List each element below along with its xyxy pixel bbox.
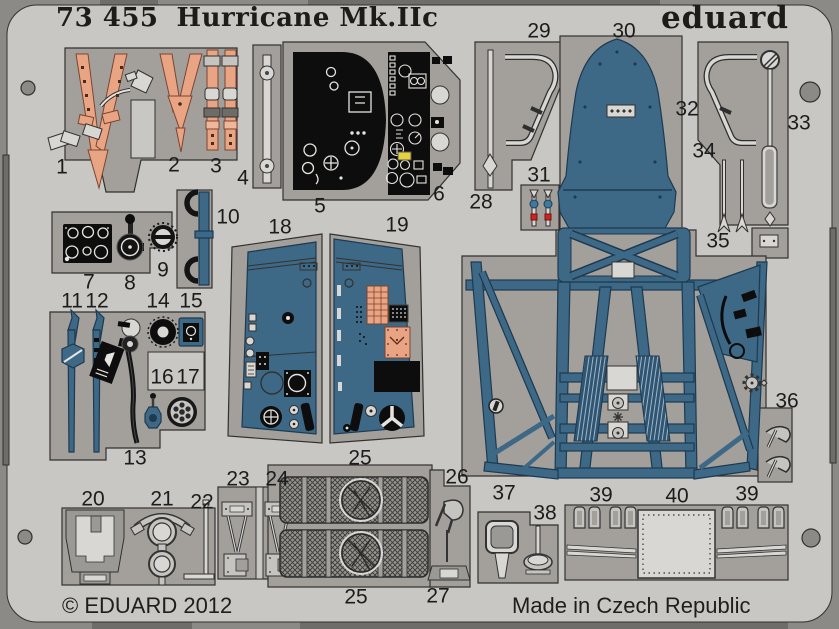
- part-number-label: 1: [56, 157, 68, 178]
- part-number-label: 2: [168, 155, 180, 176]
- part-number-label: 22: [190, 492, 213, 513]
- part-number-label: 28: [469, 192, 492, 213]
- part-number-label: 32: [675, 99, 698, 120]
- part-number-label: 39: [589, 485, 612, 506]
- catalog-number: 73 455: [56, 3, 159, 33]
- part-18-sidewall-left: [242, 242, 317, 434]
- part-number-label: 30: [612, 21, 635, 42]
- part-number-label: 31: [527, 165, 550, 186]
- part-40-plate: [638, 510, 715, 578]
- part-number-label: 14: [146, 291, 169, 312]
- part-number-label: 19: [385, 215, 408, 236]
- part-15-gauge-box: [179, 318, 203, 346]
- part-number-label: 12: [85, 291, 108, 312]
- part-number-label: 36: [775, 391, 798, 412]
- part-number-label: 39: [735, 484, 758, 505]
- part-number-label: 37: [492, 483, 515, 504]
- part-number-label: 8: [124, 273, 136, 294]
- part-number-label: 29: [527, 21, 550, 42]
- part-number-label: 40: [665, 486, 688, 507]
- part-5-instrument-panel: [293, 52, 386, 190]
- part-number-label: 16: [150, 367, 173, 388]
- part-number-label: 35: [706, 231, 729, 252]
- part-number-label: 13: [123, 448, 146, 469]
- part-number-label: 24: [265, 469, 288, 490]
- part-number-label: 5: [314, 196, 326, 217]
- part-number-label: 25: [344, 587, 367, 608]
- part-number-label: 6: [433, 184, 445, 205]
- part-number-label: 17: [176, 367, 199, 388]
- part-35-clip: [760, 235, 778, 247]
- part-number-label: 3: [210, 156, 222, 177]
- part-number-label: 38: [533, 503, 556, 524]
- part-number-label: 18: [268, 217, 291, 238]
- part-number-label: 34: [692, 141, 715, 162]
- made-in-text: Made in Czech Republic: [512, 593, 750, 619]
- sheet-title: 73 455Hurricane Mk.IIc: [56, 3, 438, 33]
- part-17-wheel: [167, 397, 197, 427]
- part-7-gauge-subpanel: [63, 224, 112, 263]
- part-number-label: 23: [226, 469, 249, 490]
- part-number-label: 4: [237, 168, 249, 189]
- brand-logo: eduard: [661, 0, 789, 36]
- part-27-box: [428, 566, 470, 580]
- part-number-label: 20: [81, 489, 104, 510]
- copyright-text: © EDUARD 2012: [62, 593, 232, 619]
- product-name: Hurricane Mk.IIc: [177, 3, 439, 33]
- part-number-label: 25: [348, 448, 371, 469]
- part-number-label: 21: [150, 489, 173, 510]
- part-number-label: 33: [787, 113, 810, 134]
- part-number-label: 26: [445, 467, 468, 488]
- fret-graphics: [0, 0, 839, 629]
- part-number-label: 10: [216, 207, 239, 228]
- part-number-label: 11: [61, 291, 83, 312]
- part-number-label: 15: [179, 291, 202, 312]
- part-number-label: 9: [157, 260, 169, 281]
- photoetch-sheet-scan: 73 455Hurricane Mk.IIc eduard © EDUARD 2…: [0, 0, 839, 629]
- part-number-label: 27: [426, 586, 449, 607]
